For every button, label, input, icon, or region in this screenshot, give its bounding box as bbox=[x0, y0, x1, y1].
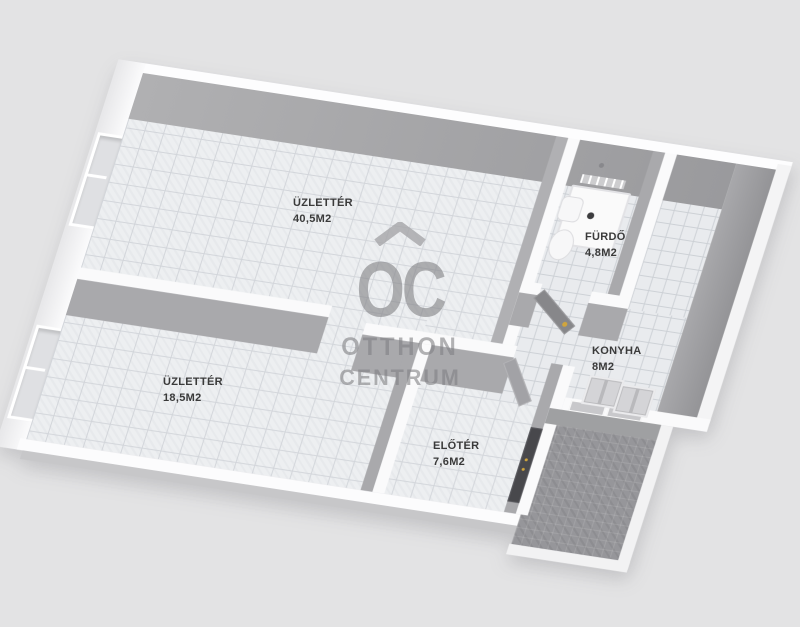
room-name: KONYHA bbox=[592, 343, 641, 359]
floor-plan-3d-view: OC OTTHON CENTRUM ÜZLETTÉR 40,5M2 FÜRDŐ … bbox=[0, 0, 800, 627]
room-area: 4,8M2 bbox=[585, 245, 626, 261]
room-name: ELŐTÉR bbox=[433, 438, 479, 454]
room-name: FÜRDŐ bbox=[585, 229, 626, 245]
room-area: 40,5M2 bbox=[293, 211, 353, 227]
room-label-furdo: FÜRDŐ 4,8M2 bbox=[585, 229, 626, 261]
entrance-door-handle-dot-2 bbox=[521, 468, 525, 471]
room-label-eloter: ELŐTÉR 7,6M2 bbox=[433, 438, 479, 470]
room-area: 18,5M2 bbox=[163, 390, 223, 406]
room-label-uzletter-small: ÜZLETTÉR 18,5M2 bbox=[163, 374, 223, 406]
room-name: ÜZLETTÉR bbox=[293, 195, 353, 211]
room-name: ÜZLETTÉR bbox=[163, 374, 223, 390]
room-area: 8M2 bbox=[592, 359, 641, 375]
room-area: 7,6M2 bbox=[433, 454, 479, 470]
room-label-konyha: KONYHA 8M2 bbox=[592, 343, 641, 375]
room-label-uzletter-large: ÜZLETTÉR 40,5M2 bbox=[293, 195, 353, 227]
entrance-door-handle-dot-1 bbox=[524, 458, 528, 461]
door-handle-dot bbox=[561, 321, 568, 328]
building bbox=[9, 73, 800, 595]
